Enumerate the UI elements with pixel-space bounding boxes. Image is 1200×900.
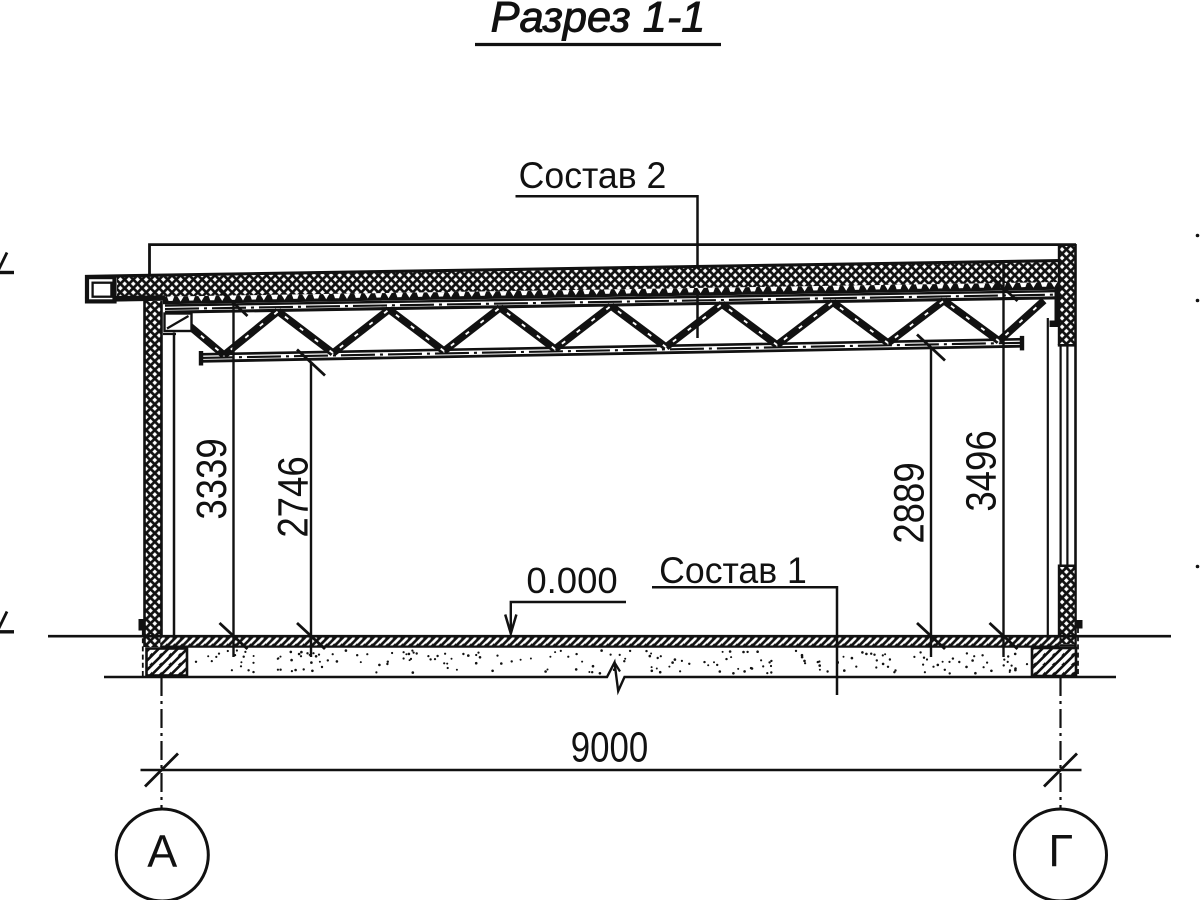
svg-text:3496: 3496	[958, 430, 1005, 511]
svg-text:Разрез 1-1: Разрез 1-1	[491, 0, 706, 41]
svg-text:Г: Г	[1048, 826, 1072, 877]
svg-text:0.000: 0.000	[526, 560, 617, 601]
svg-text:А: А	[147, 826, 177, 877]
svg-text:2746: 2746	[270, 456, 317, 537]
svg-text:Состав 1: Состав 1	[659, 549, 807, 591]
svg-text:Состав 2: Состав 2	[519, 154, 667, 196]
svg-text:2889: 2889	[886, 462, 933, 543]
svg-text:3339: 3339	[188, 438, 235, 519]
svg-text:9000: 9000	[571, 724, 648, 771]
